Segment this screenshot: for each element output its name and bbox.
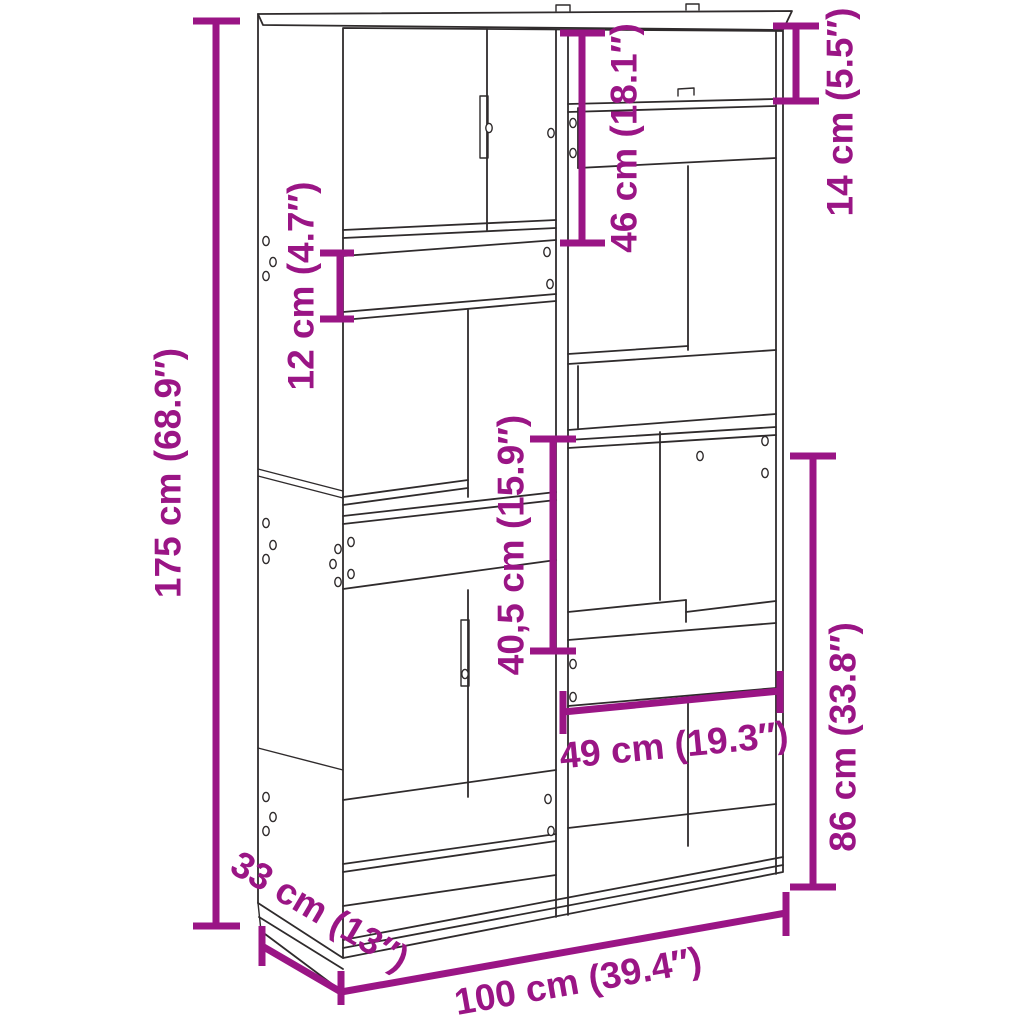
pin-hole <box>762 436 768 445</box>
shelf-edge <box>568 435 776 448</box>
dimension-label-middle-compartment: 40,5 cm (15.9″) <box>491 415 532 675</box>
bookcase-dimension-diagram: 175 cm (68.9″) 12 cm (4.7″) 46 cm (18.1″… <box>0 0 1024 1024</box>
dimension-line <box>262 946 341 992</box>
pin-hole <box>335 544 341 553</box>
pin-hole <box>462 669 468 678</box>
dimension-top-left-section-height: 46 cm (18.1″) <box>560 23 645 253</box>
pin-hole <box>263 554 269 563</box>
shelf-edge <box>568 600 686 612</box>
center-divider <box>556 30 568 917</box>
pin-hole <box>762 468 768 477</box>
dimension-label-lower-right-section: 86 cm (33.8″) <box>823 622 864 852</box>
floor-back-edge <box>343 875 556 906</box>
dimension-lower-right-section-height: 86 cm (33.8″) <box>790 456 864 887</box>
divider-notch <box>678 88 694 96</box>
shelf-edge <box>568 106 776 112</box>
pin-hole <box>570 692 576 701</box>
backboard-band <box>568 414 776 430</box>
floor-back-edge <box>568 804 776 828</box>
pin-hole <box>270 540 276 549</box>
dimension-overall-height: 175 cm (68.9″) <box>148 21 241 926</box>
pin-hole <box>335 577 341 586</box>
pin-hole <box>348 537 354 546</box>
pin-hole <box>548 128 554 137</box>
pin-hole <box>545 794 551 803</box>
cabinet-left-side-panel <box>258 14 343 990</box>
dimension-label-left-band-height: 12 cm (4.7″) <box>281 182 322 391</box>
pin-hole <box>547 279 553 288</box>
shelf-edge <box>343 488 468 505</box>
dimension-right-compartment-width: 49 cm (19.3″) <box>558 671 790 776</box>
pin-hole <box>263 826 269 835</box>
cabinet-top-face <box>258 4 792 30</box>
dimension-label-right-compartment-width: 49 cm (19.3″) <box>558 714 790 777</box>
shelf-edge <box>343 480 468 497</box>
shelf-edge <box>343 220 556 230</box>
shelf-edge <box>568 346 688 354</box>
pin-hole <box>270 812 276 821</box>
backboard-band <box>343 770 556 800</box>
dimension-label-depth: 33 cm (13″) <box>224 843 416 979</box>
backboard-band <box>343 240 556 256</box>
top-face-outline <box>258 11 792 30</box>
dimension-line <box>563 691 780 712</box>
pin-hole <box>570 659 576 668</box>
shelf-edge <box>568 99 776 104</box>
dimension-label-top-right-section: 14 cm (5.5″) <box>820 8 861 217</box>
pin-hole <box>348 569 354 578</box>
top-back-tab <box>686 4 699 10</box>
backboard-band <box>568 623 776 640</box>
pin-hole <box>486 123 492 132</box>
pin-hole <box>263 271 269 280</box>
backboard-band <box>343 834 556 864</box>
pin-hole <box>570 118 576 127</box>
backboard-band <box>343 841 556 872</box>
cabinet-front-frame <box>343 28 783 958</box>
shelf-edge <box>686 601 776 612</box>
pin-hole <box>697 451 703 460</box>
dimension-middle-compartment-height: 40,5 cm (15.9″) <box>491 415 577 675</box>
pin-hole <box>548 826 554 835</box>
pin-hole <box>263 518 269 527</box>
shelf-edge <box>343 228 556 238</box>
pin-hole <box>544 247 550 256</box>
top-back-tab <box>556 5 570 11</box>
dimension-label-overall-height: 175 cm (68.9″) <box>148 348 189 598</box>
pin-hole <box>263 792 269 801</box>
dimension-top-right-section-height: 14 cm (5.5″) <box>773 8 861 217</box>
pin-hole <box>570 148 576 157</box>
pin-hole <box>270 257 276 266</box>
bottom-panel-edge <box>343 865 783 948</box>
dimension-label-top-left-section: 46 cm (18.1″) <box>604 23 645 253</box>
shelf-edge <box>568 427 776 440</box>
pin-hole <box>330 559 336 568</box>
pin-hole <box>263 236 269 245</box>
front-outline <box>343 28 783 958</box>
side-lower-seam <box>258 748 343 770</box>
